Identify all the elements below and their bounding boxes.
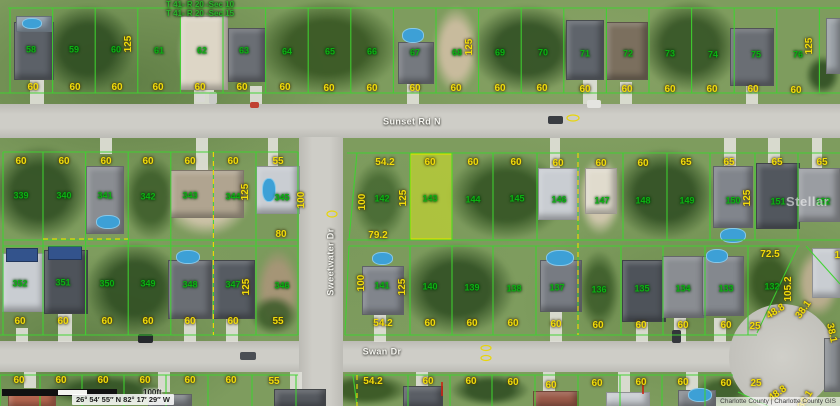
road-sweetwater-dr (299, 137, 343, 406)
driveway (30, 76, 44, 104)
driveway (196, 138, 208, 170)
house-rooftop (702, 256, 744, 316)
parcel-number: 61 (154, 47, 164, 56)
vehicle (209, 92, 217, 104)
house-rooftop (274, 389, 326, 406)
tree-cluster (640, 0, 740, 92)
swimming-pool (262, 178, 276, 202)
road-swan-dr (0, 341, 760, 372)
vehicle (548, 116, 563, 124)
tree-cluster (578, 250, 620, 330)
road-sunset-rd-n (0, 104, 840, 138)
vehicle (240, 352, 256, 360)
driveway (24, 372, 36, 388)
dimension-label: 60 (236, 83, 247, 93)
driveway (724, 138, 736, 168)
highlighted-parcel-143 (411, 154, 453, 239)
house-rooftop (622, 260, 666, 322)
driveway (226, 318, 238, 342)
driveway (812, 138, 822, 168)
dimension-label: 60 (184, 376, 195, 386)
house-rooftop (533, 391, 579, 406)
vehicle (587, 100, 601, 108)
tree-cluster (400, 243, 515, 335)
dimension-label: 60 (424, 158, 435, 168)
mls-watermark: Stellar (786, 194, 829, 209)
house-rooftop (730, 28, 774, 86)
driveway (550, 138, 560, 170)
driveway (714, 318, 726, 342)
driveway (290, 372, 302, 390)
house-rooftop (168, 260, 212, 319)
house-rooftop (566, 20, 604, 80)
section-label: T 41- R 20 -Sec 10 (166, 1, 234, 9)
driveway (768, 138, 780, 166)
dimension-label: 60 (591, 379, 602, 389)
driveway (746, 84, 758, 104)
vehicle (250, 102, 259, 108)
road-swan-dr-culdesac (729, 304, 835, 406)
house-rooftop (713, 166, 753, 228)
house-rooftop (606, 22, 648, 80)
driveway (618, 372, 630, 392)
house-rooftop (362, 266, 404, 315)
house-rooftop (606, 392, 650, 406)
driveway (184, 318, 196, 342)
driveway (100, 138, 112, 154)
solar-panels (6, 248, 38, 262)
dimension-label: 60 (635, 378, 646, 388)
house-rooftop (228, 28, 266, 82)
dimension-label: 125 (805, 38, 815, 55)
tree-cluster (352, 160, 407, 240)
house-rooftop (662, 256, 706, 318)
driveway (268, 138, 278, 168)
driveway (407, 84, 419, 104)
tree-cluster (255, 0, 400, 95)
house-rooftop (403, 386, 443, 406)
driveway (416, 372, 428, 387)
driveway (636, 320, 648, 342)
solar-panels (48, 246, 82, 260)
swimming-pool (546, 250, 574, 266)
house-rooftop (398, 42, 434, 84)
vehicle (196, 88, 205, 102)
swimming-pool (176, 250, 200, 264)
dimension-label: 60 (152, 83, 163, 93)
tree-cluster (612, 148, 717, 240)
dimension-label: 60 (507, 319, 518, 329)
house-rooftop (826, 18, 840, 74)
driveway (58, 314, 72, 342)
dimension-label: 60 (14, 317, 25, 327)
house-rooftop (538, 168, 580, 220)
swimming-pool (22, 18, 42, 29)
dimension-label: 60 (790, 86, 801, 96)
house-rooftop (540, 260, 582, 312)
dimension-label: 60 (13, 376, 24, 386)
driveway (543, 372, 555, 392)
swimming-pool (402, 28, 424, 43)
driveway (374, 314, 386, 342)
tree-cluster (450, 374, 530, 406)
map-attribution: Charlotte County | Charlotte County GIS (716, 397, 840, 406)
parcel-number: 76 (793, 51, 803, 60)
house-rooftop (585, 168, 617, 214)
driveway (550, 312, 562, 342)
dimension-label: 55 (268, 377, 279, 387)
dimension-label: 80 (275, 230, 286, 240)
swimming-pool (706, 249, 728, 263)
driveway (16, 328, 28, 342)
vehicle (138, 334, 153, 343)
map-canvas[interactable]: 5859606162636465666768697071727374757633… (0, 0, 840, 406)
dimension-label: 60 (225, 376, 236, 386)
house-rooftop (812, 248, 840, 298)
parcel-number: 143 (422, 195, 437, 204)
house-rooftop (180, 16, 228, 90)
tree-cluster (40, 5, 135, 93)
tree-cluster (0, 145, 90, 240)
swimming-pool (720, 228, 746, 243)
swimming-pool (96, 215, 120, 229)
house-rooftop (824, 338, 840, 392)
swimming-pool (688, 388, 712, 402)
tree-cluster (250, 295, 298, 335)
coordinates-readout: 26° 54′ 55″ N 82° 17′ 29″ W (72, 394, 174, 405)
vehicle (672, 330, 681, 343)
swimming-pool (372, 252, 393, 265)
driveway (620, 82, 632, 104)
house-rooftop (213, 260, 255, 319)
house-rooftop (170, 170, 244, 218)
